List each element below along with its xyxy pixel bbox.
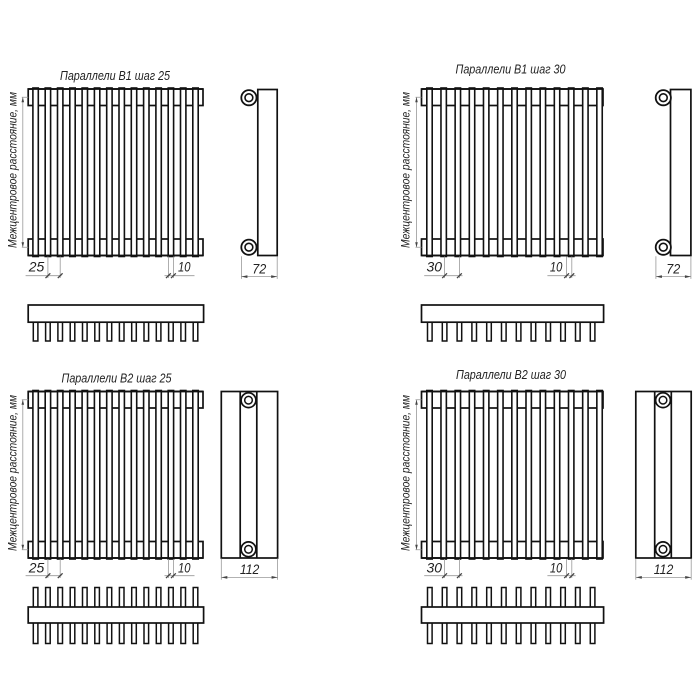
- svg-text:25: 25: [28, 259, 45, 275]
- svg-text:10: 10: [178, 559, 191, 575]
- svg-text:10: 10: [550, 259, 563, 275]
- svg-text:Межцентровое расстояние, мм: Межцентровое расстояние, мм: [6, 395, 20, 551]
- svg-text:72: 72: [252, 261, 266, 277]
- svg-text:25: 25: [28, 559, 45, 575]
- svg-text:10: 10: [178, 259, 191, 275]
- svg-text:30: 30: [427, 259, 443, 275]
- svg-text:Параллели В1 шаг 25: Параллели В1 шаг 25: [60, 69, 170, 83]
- svg-text:112: 112: [654, 561, 674, 577]
- svg-text:10: 10: [550, 559, 563, 575]
- svg-text:112: 112: [240, 561, 260, 577]
- svg-text:30: 30: [427, 559, 443, 575]
- svg-text:72: 72: [666, 261, 680, 277]
- svg-text:Межцентровое расстояние, мм: Межцентровое расстояние, мм: [6, 92, 20, 248]
- svg-text:Параллели В2 шаг 30: Параллели В2 шаг 30: [456, 368, 566, 382]
- svg-text:Межцентровое расстояние, мм: Межцентровое расстояние, мм: [399, 92, 413, 248]
- svg-text:Параллели В2 шаг 25: Параллели В2 шаг 25: [62, 372, 172, 386]
- svg-text:Параллели В1 шаг 30: Параллели В1 шаг 30: [456, 63, 566, 77]
- svg-text:Межцентровое расстояние, мм: Межцентровое расстояние, мм: [399, 395, 413, 551]
